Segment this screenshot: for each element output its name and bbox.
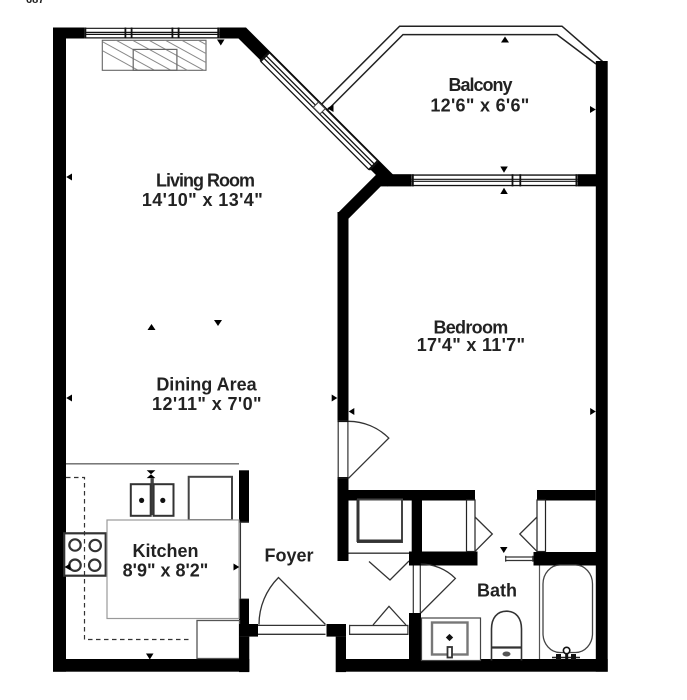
svg-text:Balcony: Balcony	[448, 75, 512, 95]
svg-text:12'6" x 6'6": 12'6" x 6'6"	[430, 96, 529, 116]
svg-text:17'4" x 11'7": 17'4" x 11'7"	[417, 335, 526, 355]
svg-text:12'11" x 7'0": 12'11" x 7'0"	[152, 394, 262, 414]
svg-text:8'9" x 8'2": 8'9" x 8'2"	[123, 561, 209, 581]
svg-text:14'10" x 13'4": 14'10" x 13'4"	[142, 190, 263, 210]
svg-text:Kitchen: Kitchen	[132, 541, 198, 561]
svg-text:Foyer: Foyer	[264, 546, 313, 566]
svg-text:687: 687	[26, 0, 44, 6]
svg-text:Bath: Bath	[477, 581, 517, 601]
svg-text:Dining Area: Dining Area	[156, 375, 257, 395]
svg-text:Living Room: Living Room	[156, 171, 254, 191]
